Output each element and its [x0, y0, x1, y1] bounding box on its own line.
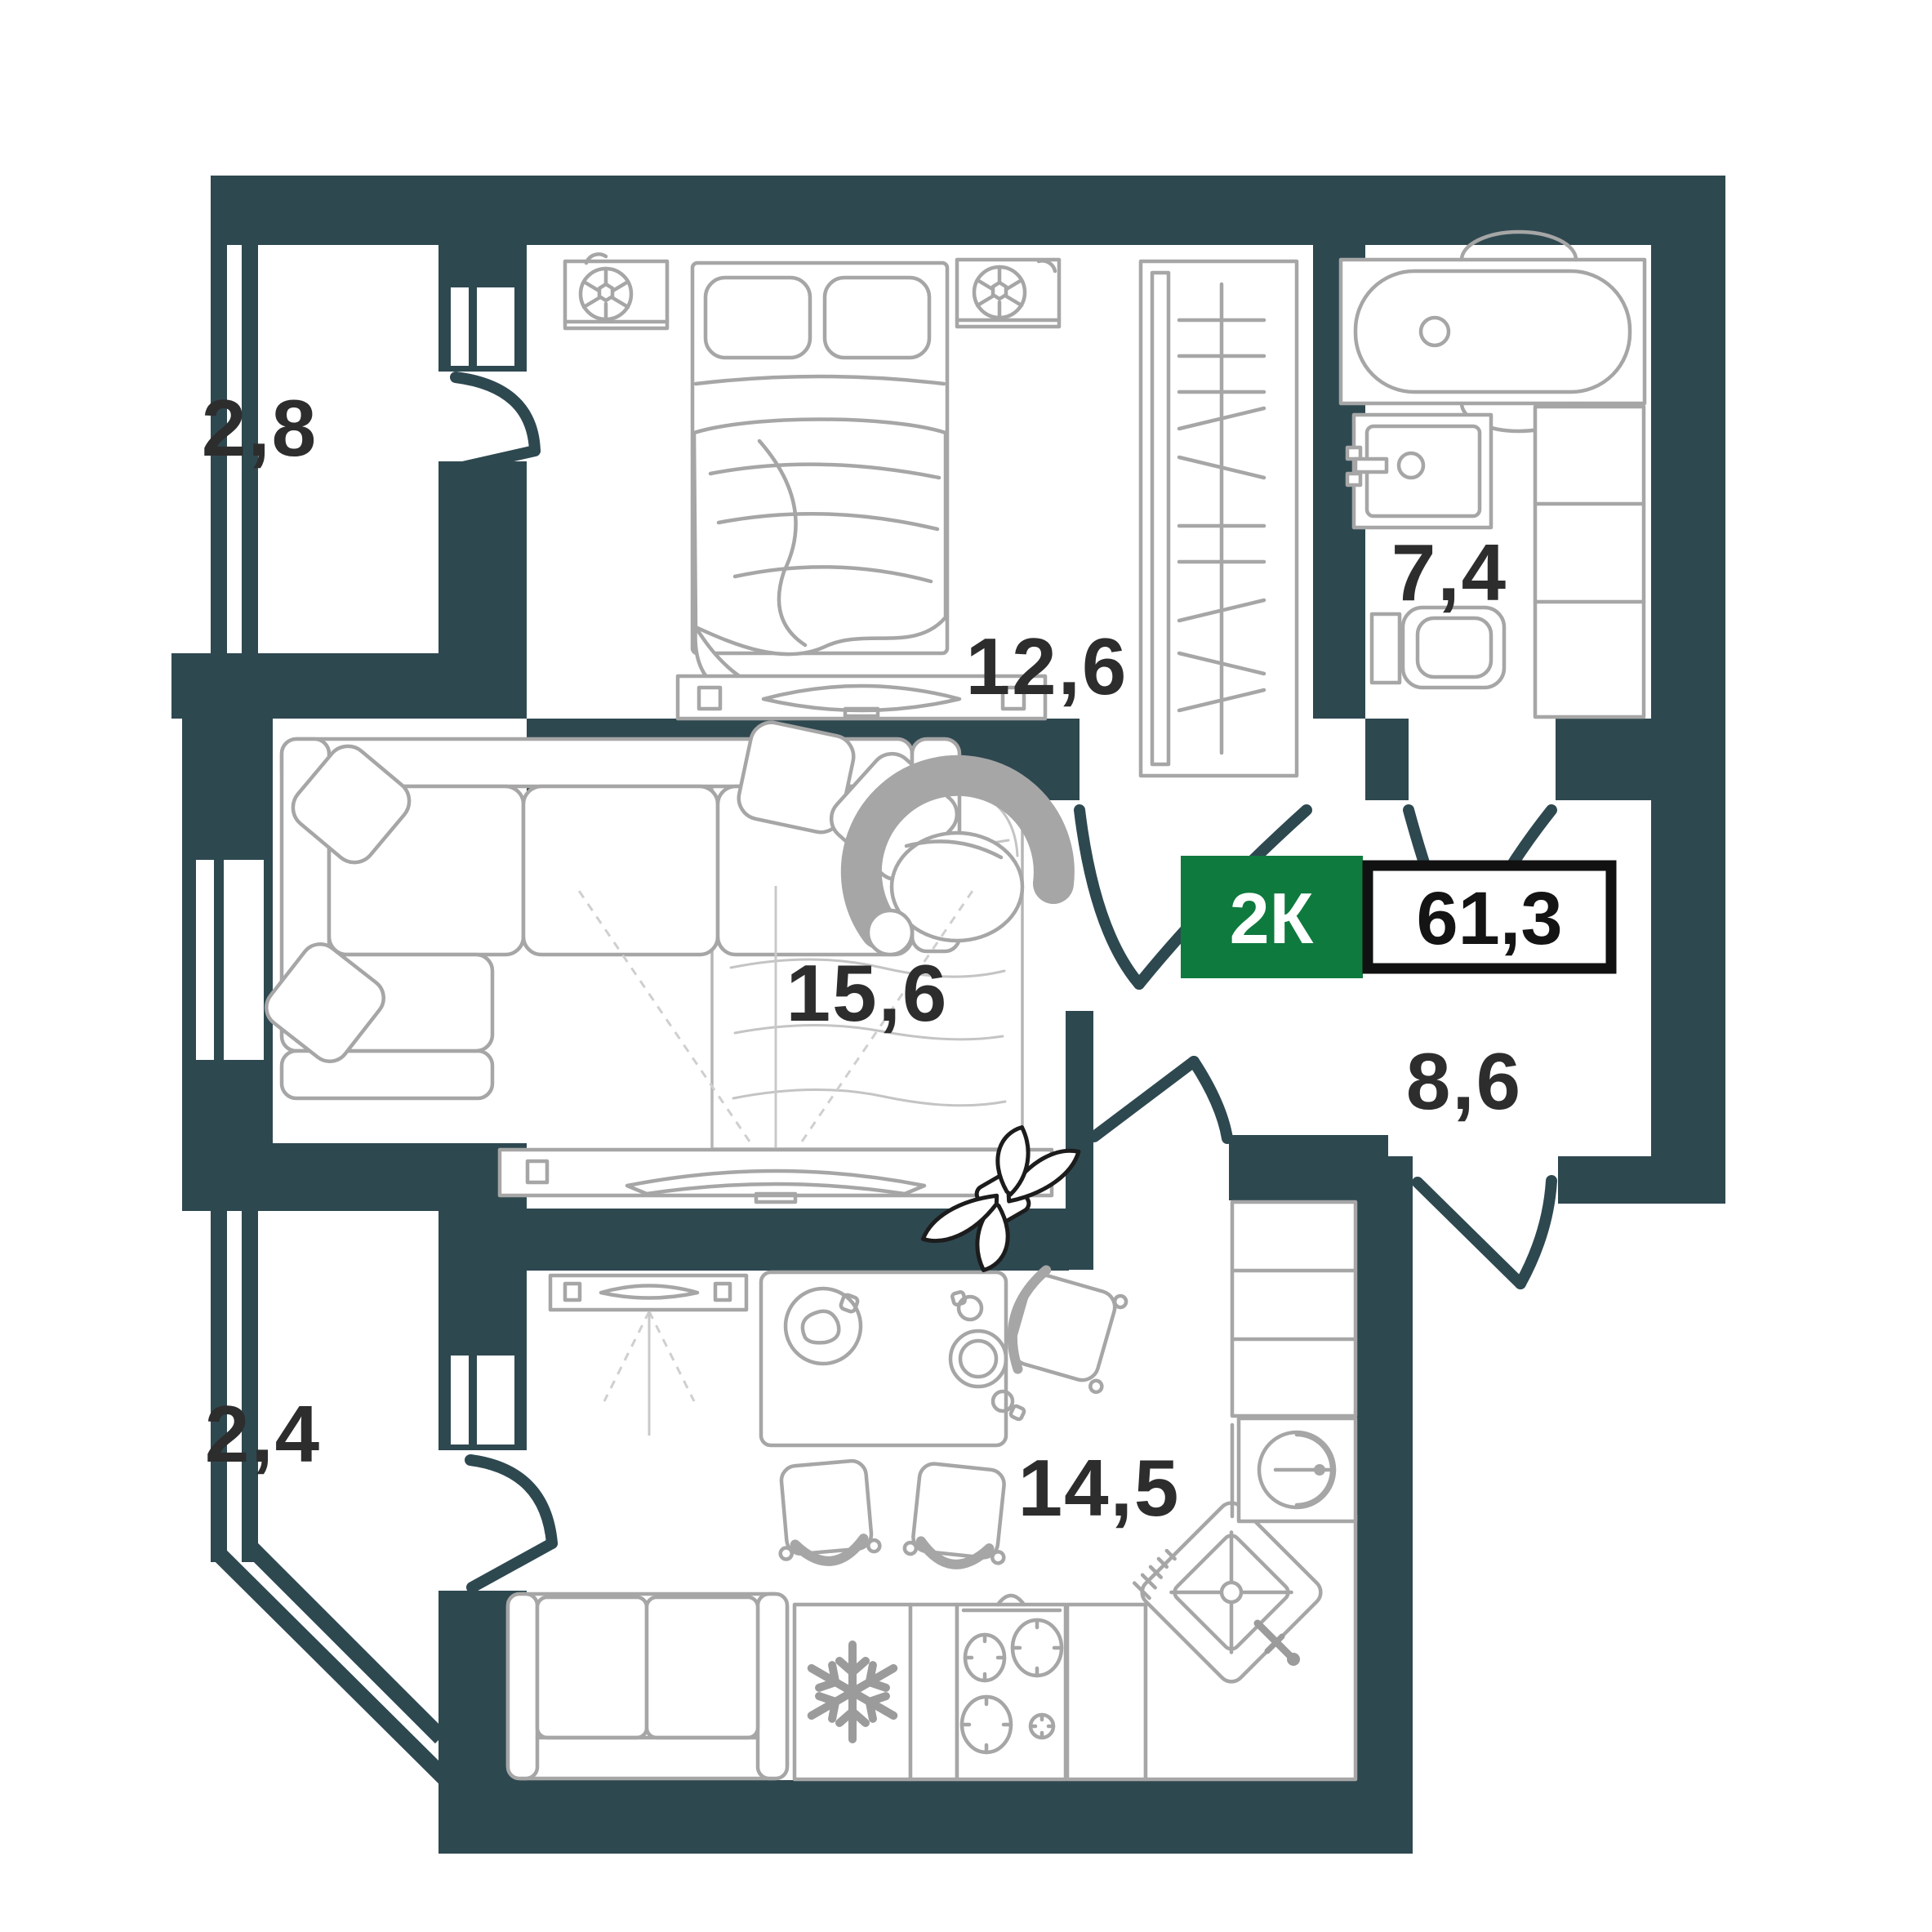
bench-sofa-icon [508, 1594, 787, 1778]
counter-icon [1067, 1605, 1146, 1779]
floor-plan: 2,8 12,6 7,4 15,6 8,6 2,4 14,5 2К 61,3 [0, 0, 1932, 1932]
fridge-icon [795, 1605, 910, 1779]
bathroom-sink-icon [1347, 415, 1491, 528]
bedroom-furniture [565, 254, 1297, 776]
bathtub-icon [1341, 232, 1645, 431]
balcony-bottom-glazing-outer [211, 1211, 227, 1562]
kitchen-cabinet-icon [1232, 1202, 1356, 1416]
kitchen-tv-icon [550, 1275, 746, 1436]
nightstand-icon [565, 254, 667, 328]
balcony-bottom-glazing-inner [242, 1211, 258, 1562]
door-arc-entrance [1520, 1181, 1551, 1284]
floor-plan-page: 2,8 12,6 7,4 15,6 8,6 2,4 14,5 2К 61,3 [0, 0, 1932, 1932]
balcony-bottom-glazing-diagonal-inner [250, 1547, 441, 1738]
chair-icon [773, 1459, 881, 1565]
door-leaf-entrance [1418, 1182, 1520, 1284]
wall-right [1651, 245, 1725, 1156]
wall-bathroom-bottom-right [1556, 719, 1651, 800]
room-label-balcony-bottom: 2,4 [205, 1389, 321, 1479]
dining-table-icon [761, 1272, 1025, 1445]
window-pane [224, 860, 264, 1060]
door-arc-balcony-top [456, 377, 535, 451]
room-label-bedroom: 12,6 [966, 621, 1128, 711]
bed-icon [692, 263, 947, 696]
toilet-icon [1372, 608, 1504, 688]
door-arc-kitchen [1194, 1062, 1227, 1138]
bathroom-furniture [1341, 232, 1645, 717]
room-label-hallway: 8,6 [1406, 1036, 1522, 1126]
window-pane [477, 287, 514, 366]
badge-area-value: 61,3 [1416, 877, 1562, 960]
kitchen-sink-icon [1131, 1492, 1356, 1779]
wall-bathroom-bottom-left [1365, 719, 1409, 800]
counter-icon [910, 1605, 957, 1779]
wall-kitchen-bottom [438, 1780, 1413, 1854]
wall-balcony-top-bottom [171, 653, 527, 719]
wall-bedroom-balcony-a [438, 245, 527, 282]
room-label-living-room: 15,6 [786, 948, 949, 1038]
stove-icon [957, 1596, 1066, 1779]
door-leaf-balcony-bottom [472, 1543, 552, 1587]
door-arc-bedroom [1080, 810, 1139, 984]
wall-entrance-stub [1558, 1156, 1725, 1204]
wall-kitchen-right [1356, 1156, 1413, 1780]
badge-type-label: 2К [1230, 878, 1314, 959]
nightstand-icon [957, 260, 1059, 327]
door-leaf-kitchen [1094, 1062, 1194, 1137]
door-arc-balcony-bottom [470, 1460, 552, 1543]
area-badge: 2К 61,3 [1181, 856, 1611, 978]
window-pane [451, 287, 469, 366]
chair-icon [1001, 1266, 1128, 1394]
wall-living-right [1066, 1011, 1093, 1270]
window-pane [451, 1356, 469, 1445]
wall-bedroom-balcony-b [438, 461, 527, 653]
room-label-balcony-top: 2,8 [202, 383, 318, 473]
wall-balcony-bottom-top [182, 1143, 527, 1211]
window-pane [477, 1356, 514, 1445]
balcony-bottom-glazing-diagonal-outer [219, 1554, 449, 1783]
room-label-bathroom: 7,4 [1391, 528, 1507, 617]
window-pane [196, 860, 214, 1060]
chair-icon [903, 1462, 1013, 1569]
room-label-kitchen: 14,5 [1018, 1443, 1181, 1533]
wardrobe-icon [1141, 261, 1297, 776]
washing-machine-icon [1232, 1418, 1356, 1521]
bathroom-cabinet-icon [1535, 407, 1644, 717]
wall-kitchen-balcony-a [438, 1211, 527, 1350]
